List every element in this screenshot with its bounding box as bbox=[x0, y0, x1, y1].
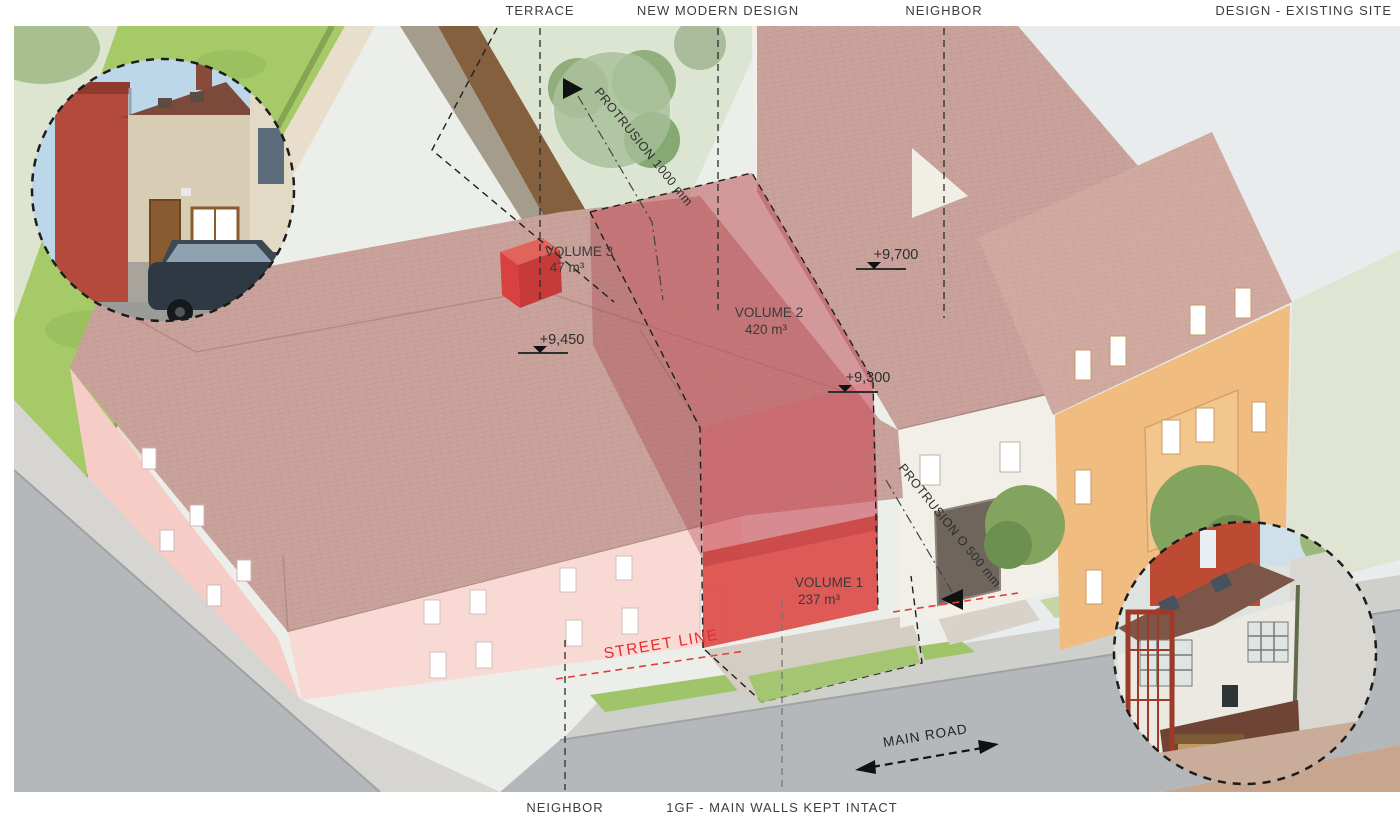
label-1gf-note: 1GF - MAIN WALLS KEPT INTACT bbox=[666, 800, 897, 815]
svg-text:+9,450: +9,450 bbox=[540, 332, 585, 348]
volume3-value: 47 m³ bbox=[550, 260, 585, 275]
label-new-modern-design: NEW MODERN DESIGN bbox=[637, 3, 799, 18]
label-terrace: TERRACE bbox=[505, 3, 574, 18]
label-design-existing: DESIGN - EXISTING SITE bbox=[1215, 3, 1392, 18]
label-neighbor-top: NEIGHBOR bbox=[905, 3, 982, 18]
volume1-label: VOLUME 1 bbox=[795, 575, 863, 590]
site-axonometric-scene: PROTRUSION 1000 mm PROTRUSION O 500 mm +… bbox=[14, 26, 1400, 792]
volume1-value: 237 m³ bbox=[798, 592, 841, 607]
label-neighbor-bottom: NEIGHBOR bbox=[526, 800, 603, 815]
svg-text:+9,700: +9,700 bbox=[874, 247, 919, 263]
volume2-value: 420 m³ bbox=[745, 322, 788, 337]
volume2-label: VOLUME 2 bbox=[735, 305, 803, 320]
architectural-diagram: TERRACE NEW MODERN DESIGN NEIGHBOR DESIG… bbox=[0, 0, 1400, 818]
svg-text:+9,300: +9,300 bbox=[846, 370, 891, 386]
volume3-label: VOLUME 3 bbox=[545, 244, 613, 259]
